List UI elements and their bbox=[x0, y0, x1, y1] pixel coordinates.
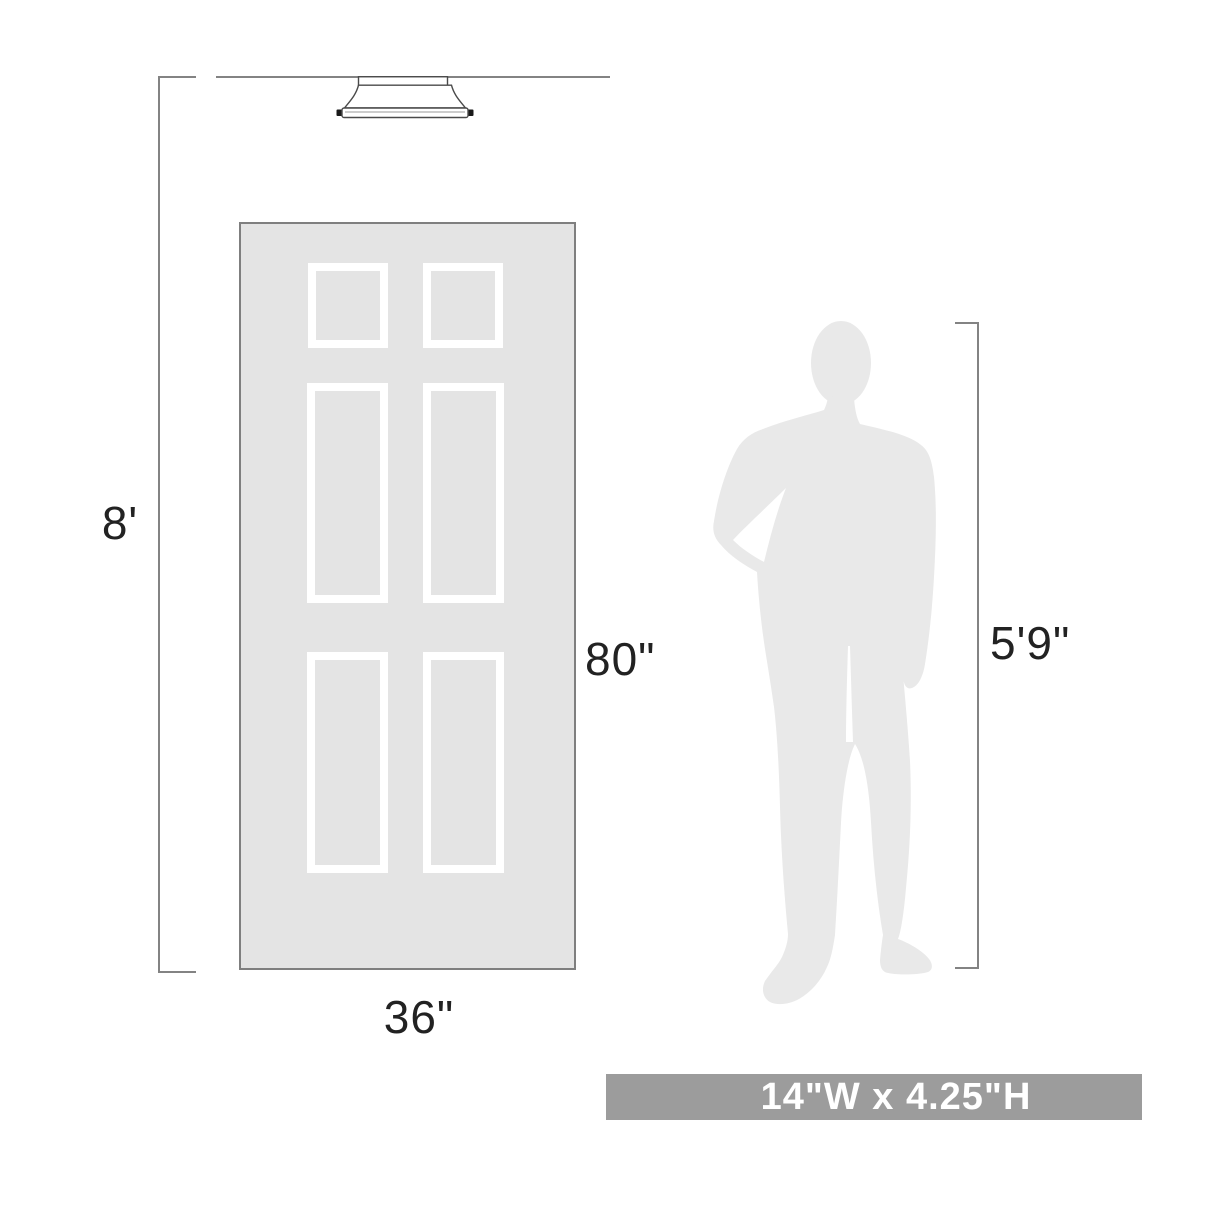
person-height-bottom-tick bbox=[955, 967, 979, 969]
door-panel bbox=[423, 652, 504, 873]
door-panel bbox=[423, 383, 504, 603]
person-height-top-tick bbox=[955, 322, 979, 324]
product-scale-diagram: 8' 80" 36" 5'9" 14"W x 4.25"H bbox=[0, 0, 1214, 1214]
fixture-dimensions-banner: 14"W x 4.25"H bbox=[606, 1074, 1142, 1120]
man-silhouette bbox=[700, 318, 940, 1008]
fixture-dimensions-text: 14"W x 4.25"H bbox=[761, 1076, 1032, 1119]
door-panel bbox=[423, 263, 503, 348]
ceiling-height-label: 8' bbox=[75, 500, 165, 546]
flush-mount-ceiling-light-icon bbox=[330, 68, 480, 120]
person-height-label: 5'9" bbox=[990, 620, 1070, 666]
door-panel bbox=[307, 383, 388, 603]
door-panel bbox=[307, 652, 388, 873]
person-height-dimension-line bbox=[977, 322, 979, 969]
door-height-label: 80" bbox=[585, 636, 656, 682]
door-width-label: 36" bbox=[355, 994, 483, 1040]
door-panel bbox=[308, 263, 388, 348]
ceiling-height-top-tick bbox=[158, 76, 196, 78]
six-panel-door-illustration bbox=[239, 222, 576, 970]
ceiling-height-bottom-tick bbox=[158, 971, 196, 973]
